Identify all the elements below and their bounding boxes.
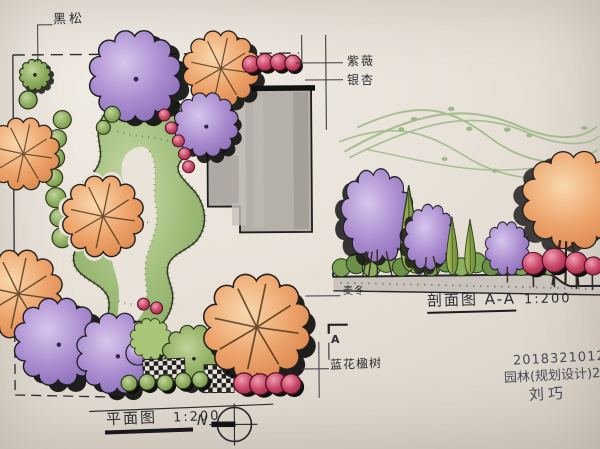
landscape-sketch-photo: 黑松 紫薇 银杏 蓝花楹树 麦冬 A 剖面图 A-A1:200 平面图1:200…	[0, 0, 600, 449]
label-section-marker-a: A	[331, 334, 340, 345]
section-title: 剖面图 A-A1:200	[427, 290, 572, 309]
north-label: N	[197, 414, 207, 428]
label-ginkgo: 银杏	[347, 74, 375, 86]
section-title-text: 剖面图 A-A	[427, 290, 517, 314]
building-streak	[293, 92, 309, 229]
label-liriope: 麦冬	[343, 287, 365, 297]
building-streak	[253, 95, 264, 227]
plan-title-text: 平面图	[106, 408, 158, 428]
plan-tree-orange-left1	[0, 118, 60, 190]
section-scale: 1:200	[524, 291, 572, 307]
section-view	[331, 106, 600, 297]
label-crape-myrtle: 紫薇	[347, 55, 375, 67]
label-black-pine: 黑松	[53, 12, 85, 26]
building-streak	[209, 155, 239, 203]
section-cypress-3	[465, 219, 476, 275]
plan-view	[0, 23, 349, 448]
label-jacaranda: 蓝花楹树	[330, 357, 382, 371]
red-shrub-row-bottom	[234, 372, 305, 397]
red-shrub-row-top	[242, 53, 303, 75]
plan-tree-orange-center	[58, 172, 147, 261]
plan-tree-black-pine	[19, 59, 54, 109]
title-block-author: 刘巧	[529, 386, 568, 403]
